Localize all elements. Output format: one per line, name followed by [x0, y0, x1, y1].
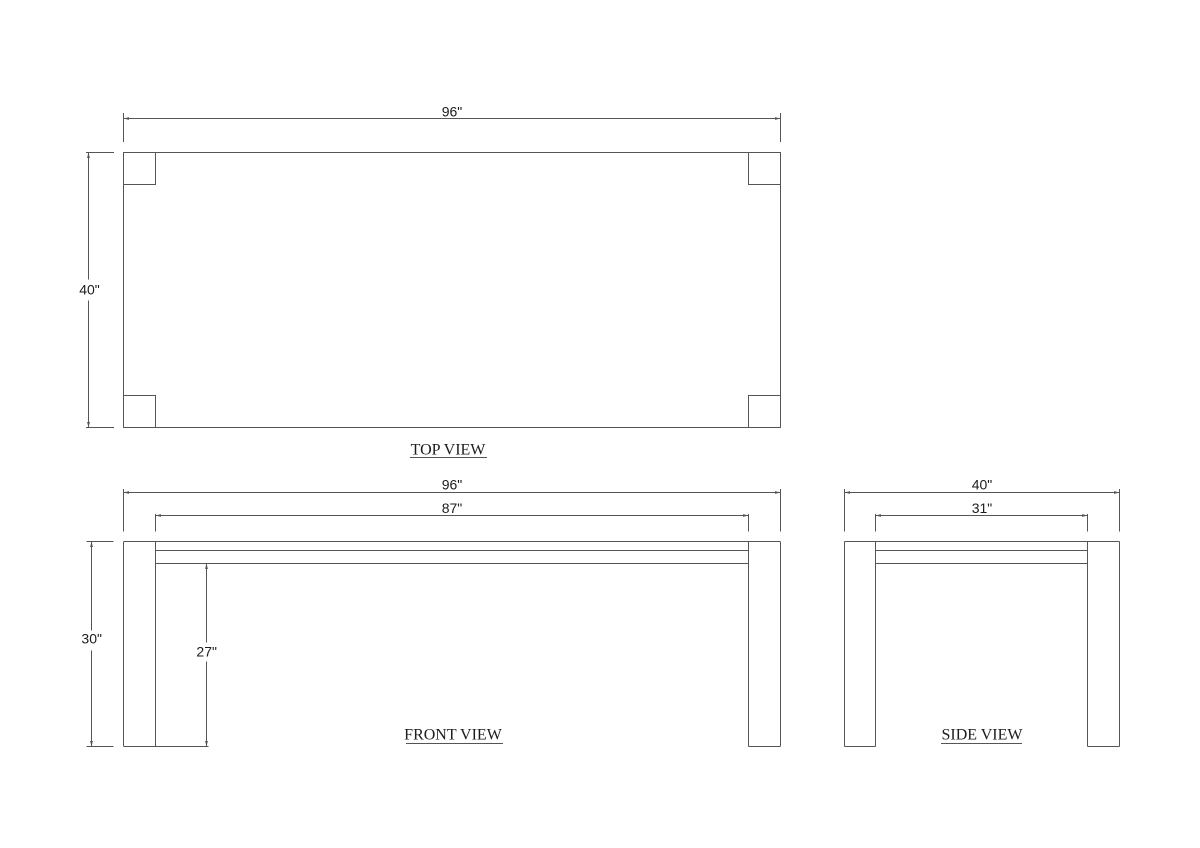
svg-text:30": 30" — [81, 631, 102, 647]
svg-text:96": 96" — [442, 477, 463, 493]
svg-text:FRONT VIEW: FRONT VIEW — [404, 727, 503, 744]
svg-text:96": 96" — [442, 104, 463, 120]
svg-text:40": 40" — [972, 477, 993, 493]
svg-text:40": 40" — [79, 282, 100, 298]
svg-text:SIDE VIEW: SIDE VIEW — [941, 727, 1023, 744]
svg-text:27": 27" — [196, 644, 217, 660]
svg-text:87": 87" — [442, 500, 463, 516]
svg-text:TOP VIEW: TOP VIEW — [411, 442, 487, 459]
svg-text:31": 31" — [972, 500, 993, 516]
